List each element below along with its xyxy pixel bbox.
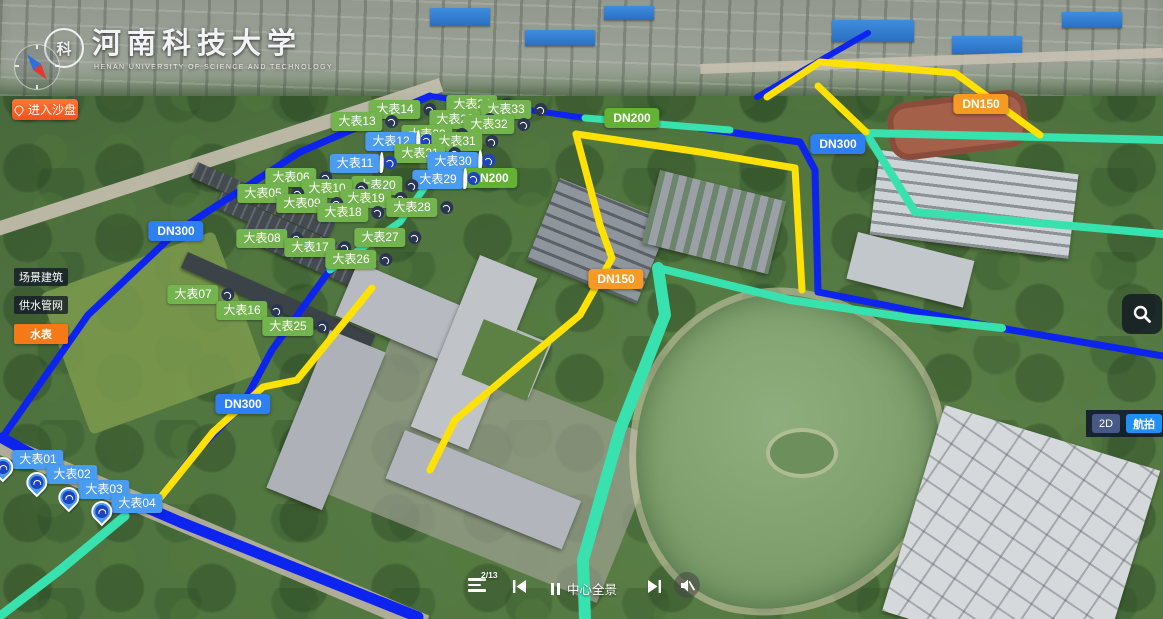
skip-previous-icon — [513, 580, 526, 593]
mode-aerial-button[interactable]: 航拍 — [1126, 414, 1162, 433]
pipe-label[interactable]: DN150 — [953, 94, 1008, 114]
skip-next-icon — [648, 580, 661, 593]
pause-icon — [551, 583, 560, 595]
current-scene-control[interactable]: 中心全景 — [551, 579, 617, 598]
meter-marker[interactable]: 大表16 — [216, 301, 267, 320]
mute-button[interactable] — [674, 572, 700, 598]
search-button[interactable] — [1122, 294, 1162, 334]
meter-marker-label: 大表26 — [325, 250, 376, 269]
app-title: 河南科技大学 — [92, 20, 322, 62]
meter-marker[interactable]: 大表07 — [167, 285, 218, 304]
meter-marker-label: 大表08 — [236, 229, 287, 248]
meter-marker[interactable]: 大表25 — [262, 317, 313, 336]
legend-item-1[interactable]: 供水管网 — [14, 296, 68, 314]
next-scene-button[interactable] — [648, 580, 661, 593]
app-subtitle: HENAN UNIVERSITY OF SCIENCE AND TECHNOLO… — [94, 64, 334, 71]
legend-item-2[interactable]: 水表 — [14, 324, 68, 344]
meter-marker[interactable]: 大表11 — [330, 154, 384, 173]
meter-marker[interactable]: 大表28 — [386, 198, 437, 217]
enter-sandbox-label: 进入沙盘 — [28, 101, 76, 118]
meter-marker-label: 大表16 — [216, 301, 267, 320]
legend-item-0[interactable]: 场景建筑 — [14, 268, 68, 286]
meter-pin-icon — [464, 168, 468, 189]
current-scene-label: 中心全景 — [567, 579, 617, 598]
mode-2d-button[interactable]: 2D — [1092, 414, 1120, 433]
pipe-label[interactable]: DN200 — [604, 108, 659, 128]
marker-layer: DN300DN300DN300DN200DN200DN150DN150大表01大… — [0, 0, 1163, 619]
meter-marker[interactable]: 大表27 — [354, 228, 405, 247]
scene-counter: 2/13 — [481, 570, 498, 580]
search-icon — [1132, 304, 1152, 324]
view-mode-bar: 2D 航拍 — [1086, 410, 1163, 437]
pipe-label[interactable]: DN300 — [148, 221, 203, 241]
scene-list-button[interactable] — [468, 578, 490, 594]
meter-marker-label: 大表13 — [331, 112, 382, 131]
meter-marker[interactable]: 大表13 — [331, 112, 382, 131]
compass-widget[interactable] — [14, 44, 60, 90]
previous-scene-button[interactable] — [513, 580, 526, 593]
speaker-muted-icon — [680, 578, 695, 593]
enter-sandbox-button[interactable]: 进入沙盘 — [12, 99, 78, 120]
pipe-label[interactable]: DN300 — [215, 394, 270, 414]
meter-marker-label: 大表18 — [317, 203, 368, 222]
meter-marker-label: 大表25 — [262, 317, 313, 336]
layer-legend: 场景建筑供水管网水表 — [14, 268, 72, 354]
meter-marker-label: 大表04 — [111, 494, 162, 513]
pipe-label[interactable]: DN150 — [588, 269, 643, 289]
meter-marker-label: 大表11 — [330, 154, 380, 173]
meter-marker-label: 大表07 — [167, 285, 218, 304]
meter-marker-label: 大表27 — [354, 228, 405, 247]
meter-marker[interactable]: 大表18 — [317, 203, 368, 222]
location-pin-icon — [13, 103, 26, 116]
meter-marker[interactable]: 大表04 — [111, 494, 162, 513]
meter-marker-label: 大表29 — [412, 170, 463, 189]
meter-pin-icon — [380, 152, 384, 173]
meter-marker[interactable]: 大表26 — [325, 250, 376, 269]
pipe-label[interactable]: DN300 — [810, 134, 865, 154]
meter-marker[interactable]: 大表08 — [236, 229, 287, 248]
meter-marker-label: 大表28 — [386, 198, 437, 217]
meter-marker[interactable]: 大表29 — [412, 170, 467, 189]
digital-twin-viewport[interactable]: DN300DN300DN300DN200DN200DN150DN150大表01大… — [0, 0, 1163, 619]
